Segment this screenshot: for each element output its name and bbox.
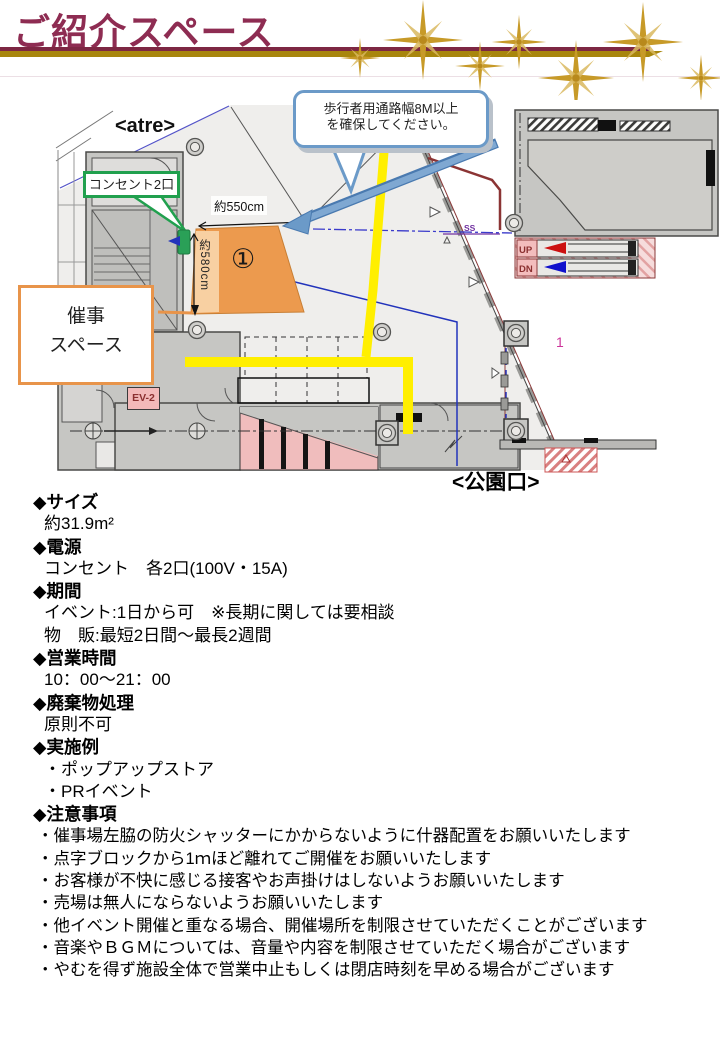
example-popup: ・ポップアップストア — [33, 759, 715, 781]
page: ご紹介スペース — [0, 0, 720, 1040]
space-number-label: ① — [231, 244, 255, 275]
size-value: 約31.9m² — [33, 513, 715, 535]
event-space-connector — [158, 312, 192, 313]
area-number-label: 1 — [556, 334, 564, 350]
note-line: ・点字ブロックから1ｍほど離れてご開催をお願いいたします — [33, 848, 715, 870]
power-value: コンセント 各2口(100V・15A) — [33, 558, 715, 580]
waste-value: 原則不可 — [33, 714, 715, 736]
center-escalator — [115, 403, 520, 470]
event-space-line2: スペース — [21, 331, 151, 360]
notes-heading: ◆注意事項 — [33, 803, 715, 825]
examples-heading: ◆実施例 — [33, 736, 715, 758]
hours-value: 10：00〜21：00 — [33, 669, 715, 691]
floor-plan-map: UP DN SS 1 <atre> 歩行者用通路幅8M以上 を確保してく — [0, 0, 720, 495]
details-list: ◆サイズ 約31.9m² ◆電源 コンセント 各2口(100V・15A) ◆期間… — [33, 491, 715, 982]
event-space-label-box: 催事 スペース — [18, 285, 154, 385]
upper-right-block — [515, 110, 718, 236]
note-line: ・やむを得ず施設全体で営業中止もしくは閉店時刻を早める場合がございます — [33, 959, 715, 981]
event-space-line1: 催事 — [21, 302, 151, 331]
pedestrian-path-callout: 歩行者用通路幅8M以上 を確保してください。 — [293, 90, 489, 148]
elevator-ev2-label: EV-2 — [127, 387, 160, 410]
waste-heading: ◆廃棄物処理 — [33, 692, 715, 714]
depth-measurement-label: 約580cm — [196, 239, 212, 311]
red-hatch-area — [545, 448, 597, 472]
note-line: ・他イベント開催と重なる場合、開催場所を制限させていただくことがございます — [33, 915, 715, 937]
note-line: ・音楽やＢＧＭについては、音量や内容を制限させていただく場合がございます — [33, 937, 715, 959]
width-measurement-label: 約550cm — [211, 196, 267, 215]
period-heading: ◆期間 — [33, 580, 715, 602]
escalator-up-down — [515, 238, 655, 278]
pedestrian-callout-line2: を確保してください。 — [296, 117, 486, 133]
hours-heading: ◆営業時間 — [33, 647, 715, 669]
outlet-callout: コンセント2口 — [83, 171, 180, 198]
example-pr: ・PRイベント — [33, 781, 715, 803]
atre-label: <atre> — [115, 115, 175, 138]
period-sales-value: 物 販:最短2日間〜最長2週間 — [33, 625, 715, 647]
power-heading: ◆電源 — [33, 536, 715, 558]
note-line: ・催事場左脇の防火シャッターにかからないように什器配置をお願いいたします — [33, 825, 715, 847]
note-line: ・お客様が不快に感じる接客やお声掛けはしないようお願いいたします — [33, 870, 715, 892]
size-heading: ◆サイズ — [33, 491, 715, 513]
floor-plan-drawing: UP DN SS 1 — [55, 100, 720, 475]
note-line: ・売場は無人にならないようお願いいたします — [33, 892, 715, 914]
pedestrian-callout-line1: 歩行者用通路幅8M以上 — [296, 101, 486, 117]
escalator-up-label: UP — [519, 245, 533, 256]
escalator-down-label: DN — [519, 264, 533, 275]
period-event-value: イベント:1日から可 ※長期に関しては要相談 — [33, 602, 715, 624]
ss-label: SS — [464, 223, 476, 233]
